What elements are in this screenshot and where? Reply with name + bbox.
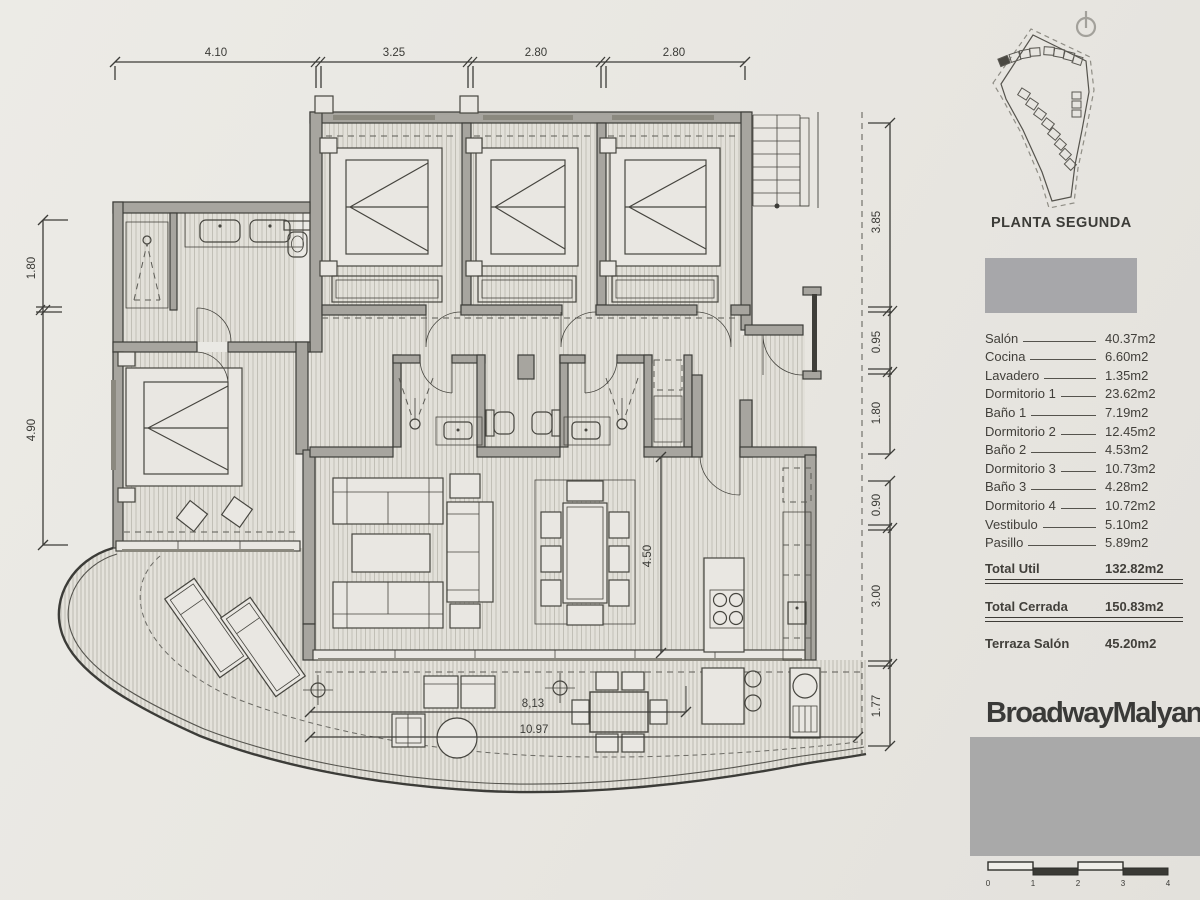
dim-label: 1.80	[26, 257, 38, 279]
entry-door-leaf	[812, 294, 817, 372]
leader-line	[1061, 434, 1096, 435]
scale-label: 2	[1076, 879, 1081, 888]
room-name: Pasillo	[985, 535, 1023, 550]
dim-label: 1.77	[871, 695, 883, 717]
room-area: 4.28m2	[1105, 479, 1183, 494]
room-name: Lavadero	[985, 368, 1039, 383]
leader-line	[1061, 396, 1096, 397]
stairs	[753, 115, 809, 210]
coffee-table	[352, 534, 430, 572]
leader-line	[1028, 545, 1096, 546]
scale-label: 3	[1121, 879, 1126, 888]
double-rule	[985, 617, 1183, 622]
room-area: 6.60m2	[1105, 349, 1183, 364]
room-area: 12.45m2	[1105, 424, 1183, 439]
room-name: Baño 3	[985, 479, 1026, 494]
schedule-row: Vestibulo5.10m2	[985, 513, 1183, 532]
room-area: 40.37m2	[1105, 331, 1183, 346]
scale-label: 0	[986, 879, 991, 888]
north-arrow-icon	[1077, 11, 1095, 36]
room-schedule: Salón40.37m2 Cocina6.60m2 Lavadero1.35m2…	[985, 327, 1183, 651]
scale-label: 1	[1031, 879, 1036, 888]
side-table	[450, 604, 480, 628]
broadwaymalyan-logo: BroadwayMalyanB	[986, 697, 1200, 730]
room-name: Baño 1	[985, 405, 1026, 420]
schedule-row: Dormitorio 410.72m2	[985, 494, 1183, 513]
dim-label: 2.80	[663, 47, 685, 59]
room-name: Dormitorio 2	[985, 424, 1056, 439]
dim-label: 1.80	[871, 402, 883, 424]
leader-line	[1061, 471, 1096, 472]
terrace-value: 45.20m2	[1105, 636, 1183, 651]
room-name: Salón	[985, 331, 1018, 346]
bedroom-4-bed	[600, 138, 720, 276]
schedule-row: Pasillo5.89m2	[985, 532, 1183, 551]
terraza-row: Terraza Salón45.20m2	[985, 632, 1183, 651]
leader-line	[1023, 341, 1096, 342]
scale-label: 4	[1166, 879, 1171, 888]
roof-flue	[460, 96, 478, 113]
total-util-row: Total Util132.82m2	[985, 557, 1183, 576]
schedule-row: Dormitorio 123.62m2	[985, 383, 1183, 402]
dim-label: 4.10	[205, 47, 227, 59]
logo-text: BroadwayMalyan	[986, 697, 1200, 729]
dim-label: 3.00	[871, 585, 883, 607]
schedule-row: Baño 24.53m2	[985, 439, 1183, 458]
room-area: 4.53m2	[1105, 442, 1183, 457]
schedule-row: Cocina6.60m2	[985, 346, 1183, 365]
leader-line	[1031, 452, 1096, 453]
room-name: Dormitorio 3	[985, 461, 1056, 476]
terrace-label: Terraza Salón	[985, 636, 1069, 651]
leader-line	[1044, 378, 1096, 379]
double-rule	[985, 579, 1183, 584]
dim-label: 3.85	[871, 211, 883, 233]
total-cerrada-row: Total Cerrada150.83m2	[985, 596, 1183, 615]
highlighted-unit	[998, 55, 1010, 66]
total-label: Total Util	[985, 561, 1040, 576]
room-name: Dormitorio 1	[985, 386, 1056, 401]
site-location-plan	[993, 11, 1095, 208]
scanned-floorplan-page: 4.10 3.25 2.80 2.80 1.80 4.90 3.85 0.95 …	[0, 0, 1200, 900]
leader-line	[1061, 508, 1096, 509]
leader-line	[1030, 359, 1096, 360]
dim-label: 4.50	[642, 545, 654, 567]
bedroom-2-bed	[320, 138, 442, 276]
bedroom-3-bed	[466, 138, 578, 276]
schedule-row: Baño 17.19m2	[985, 401, 1183, 420]
leader-line	[1031, 489, 1096, 490]
round-table	[437, 718, 477, 758]
dim-label: 10.97	[520, 724, 549, 736]
scale-bar: 0 1 2 3 4	[986, 862, 1171, 888]
dim-label: 0.95	[871, 331, 883, 353]
total-label: Total Cerrada	[985, 599, 1068, 614]
schedule-row: Dormitorio 212.45m2	[985, 420, 1183, 439]
site-plan-title: PLANTA SEGUNDA	[991, 215, 1132, 231]
redacted-block-bottom	[970, 737, 1200, 856]
schedule-row: Lavadero1.35m2	[985, 364, 1183, 383]
schedule-row: Baño 34.28m2	[985, 476, 1183, 495]
room-name: Baño 2	[985, 442, 1026, 457]
sofa-group	[333, 474, 493, 628]
total-value: 150.83m2	[1105, 599, 1183, 614]
dim-label: 4.90	[26, 419, 38, 441]
leader-line	[1031, 415, 1096, 416]
dim-label: 2.80	[525, 47, 547, 59]
schedule-row: Salón40.37m2	[985, 327, 1183, 346]
room-area: 1.35m2	[1105, 368, 1183, 383]
redacted-block-top	[985, 258, 1137, 313]
room-area: 5.89m2	[1105, 535, 1183, 550]
room-area: 10.72m2	[1105, 498, 1183, 513]
room-area: 10.73m2	[1105, 461, 1183, 476]
dim-label: 8,13	[522, 698, 544, 710]
leader-line	[1043, 527, 1096, 528]
room-name: Dormitorio 4	[985, 498, 1056, 513]
room-area: 7.19m2	[1105, 405, 1183, 420]
room-name: Cocina	[985, 349, 1025, 364]
roof-flue	[315, 96, 333, 113]
room-area: 5.10m2	[1105, 517, 1183, 532]
side-table	[450, 474, 480, 498]
room-area: 23.62m2	[1105, 386, 1183, 401]
total-value: 132.82m2	[1105, 561, 1183, 576]
dim-label: 0.90	[871, 494, 883, 516]
room-name: Vestibulo	[985, 517, 1038, 532]
dim-label: 3.25	[383, 47, 405, 59]
schedule-row: Dormitorio 310.73m2	[985, 457, 1183, 476]
